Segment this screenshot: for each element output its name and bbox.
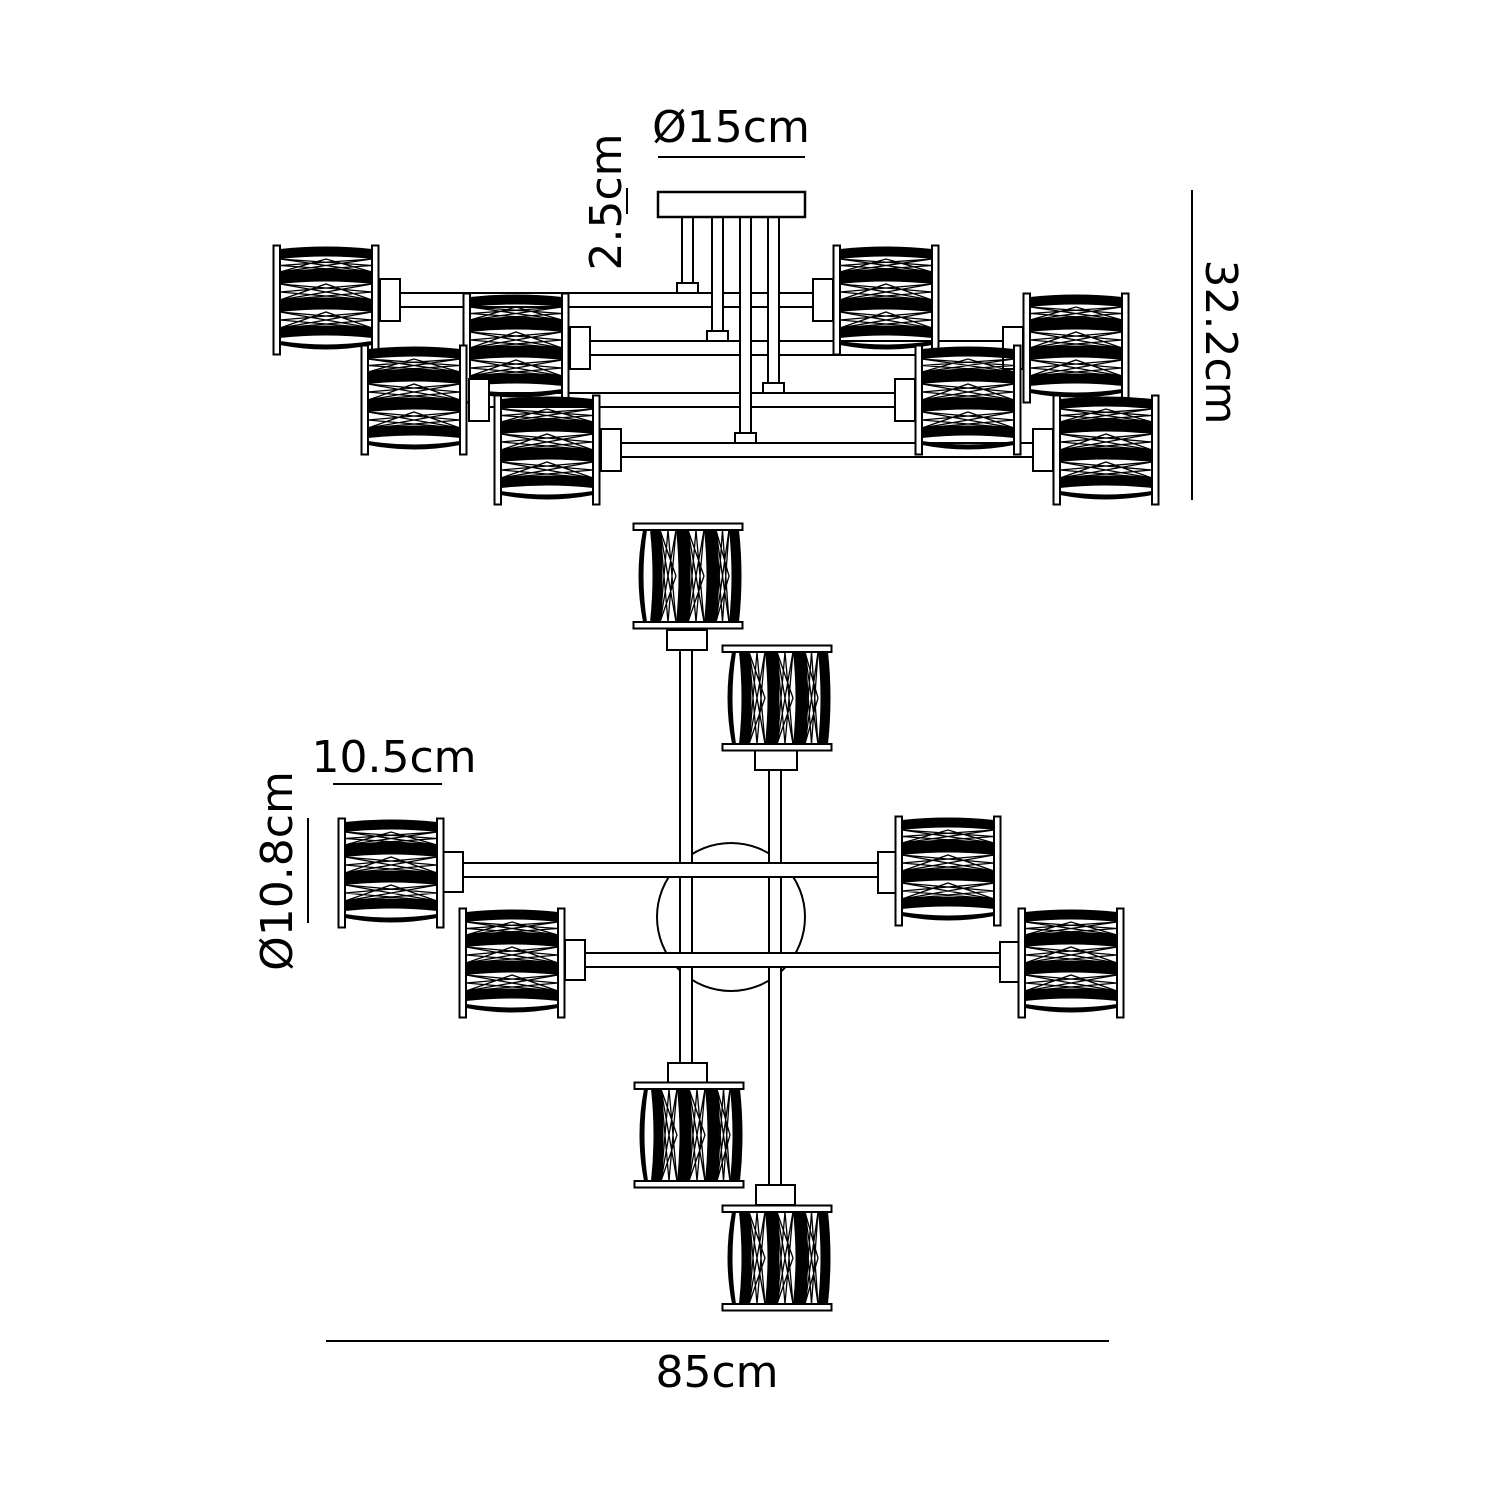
dim-fixture-height: 32.2cm <box>1192 190 1246 500</box>
dim-canopy-thickness: 2.5cm <box>581 133 632 270</box>
technical-drawing-page: Ø15cm 2.5cm 32.2cm 10.5cm Ø10.8cm 85cm <box>0 0 1500 1500</box>
dim-shade-diameter: Ø10.8cm <box>252 771 308 971</box>
rod-foot <box>735 433 756 443</box>
elevation-view <box>274 192 1159 505</box>
crystal-shade <box>896 817 1001 926</box>
drop-rod <box>768 216 779 393</box>
dim-label-fixture-height: 32.2cm <box>1195 259 1246 424</box>
dim-shade-width: 10.5cm <box>311 732 476 784</box>
dim-label-canopy-diameter: Ø15cm <box>652 102 810 153</box>
crystal-shade <box>274 246 379 355</box>
rod-foot <box>707 331 728 341</box>
crystal-shade <box>1019 909 1124 1018</box>
shade-connector <box>667 630 707 650</box>
drop-rod <box>712 216 723 341</box>
crystal-shade <box>339 819 444 928</box>
crystal-shade <box>362 346 467 455</box>
drop-rod <box>740 216 751 443</box>
shade-connector <box>570 327 590 369</box>
ceiling-plate <box>658 192 805 217</box>
shade-connector <box>755 750 797 770</box>
shade-connector <box>565 940 585 980</box>
shade-connector <box>895 379 915 421</box>
crystal-shade <box>635 1083 744 1188</box>
arm-tube <box>390 293 823 307</box>
crystal-shade <box>723 646 832 751</box>
arm-tube-vertical <box>769 770 781 1185</box>
crystal-shade <box>495 396 600 505</box>
shade-connector <box>813 279 833 321</box>
shade-connector <box>756 1185 795 1205</box>
plan-view <box>339 524 1124 1311</box>
crystal-shade <box>834 246 939 355</box>
dim-label-shade-width: 10.5cm <box>311 732 476 783</box>
dim-label-canopy-thickness: 2.5cm <box>581 133 632 270</box>
dim-label-shade-diameter: Ø10.8cm <box>252 771 303 971</box>
crystal-shade <box>723 1206 832 1311</box>
rod-foot <box>677 283 698 293</box>
arm-tube-vertical <box>680 650 692 1063</box>
crystal-shade <box>634 524 743 629</box>
arm-tube-horizontal <box>585 953 1000 967</box>
chandelier-dimension-drawing: Ø15cm 2.5cm 32.2cm 10.5cm Ø10.8cm 85cm <box>0 0 1500 1500</box>
shade-connector <box>668 1063 707 1083</box>
dim-fixture-width: 85cm <box>326 1341 1109 1398</box>
drop-rod <box>682 216 693 293</box>
shade-connector <box>469 379 489 421</box>
crystal-shade <box>1024 294 1129 403</box>
dim-canopy-diameter: Ø15cm <box>652 102 810 157</box>
dim-label-fixture-width: 85cm <box>655 1347 778 1398</box>
shade-connector <box>1033 429 1053 471</box>
shade-connector <box>443 852 463 892</box>
crystal-shade <box>1054 396 1159 505</box>
shade-connector <box>601 429 621 471</box>
rod-foot <box>763 383 784 393</box>
arm-tube-horizontal <box>463 863 878 877</box>
crystal-shade <box>460 909 565 1018</box>
shade-connector <box>380 279 400 321</box>
